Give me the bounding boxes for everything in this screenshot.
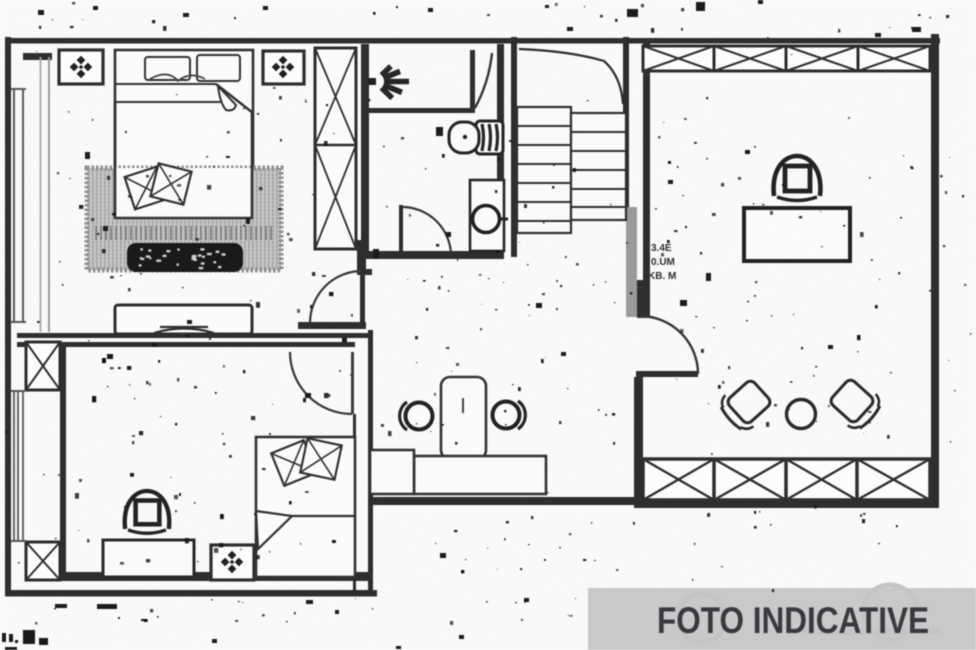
svg-text:FOTO INDICATIVE: FOTO INDICATIVE	[657, 600, 929, 641]
